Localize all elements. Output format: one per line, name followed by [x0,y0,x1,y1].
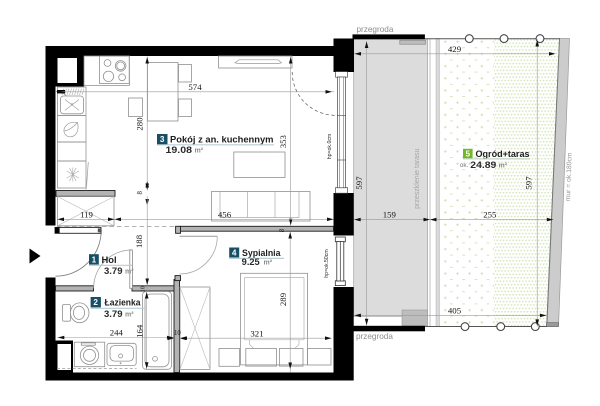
svg-text:597: 597 [354,176,364,190]
svg-text:Łazienka: Łazienka [105,297,142,308]
svg-text:353: 353 [278,135,288,149]
svg-text:8: 8 [137,191,144,195]
svg-text:321: 321 [250,328,263,338]
svg-text:10: 10 [174,330,181,337]
svg-text:164: 164 [134,324,144,338]
svg-text:456: 456 [218,210,232,220]
svg-text:m²: m² [195,148,204,155]
svg-text:m²: m² [499,162,508,169]
svg-text:3.79: 3.79 [104,266,123,276]
svg-text:8: 8 [279,228,286,232]
svg-text:hp=ok.50cm: hp=ok.50cm [324,249,330,277]
svg-text:4: 4 [232,249,237,258]
svg-text:3: 3 [160,135,165,144]
svg-text:574: 574 [188,82,202,92]
svg-text:Ogród+taras: Ogród+taras [476,148,530,159]
svg-text:1: 1 [92,255,97,264]
svg-text:przegroda: przegroda [357,25,394,34]
svg-text:255: 255 [483,210,497,220]
svg-text:24.89: 24.89 [470,160,496,170]
svg-text:ok.: ok. [460,162,469,169]
svg-text:19.08: 19.08 [166,145,193,155]
svg-text:429: 429 [448,44,462,54]
svg-text:3.79: 3.79 [104,309,123,319]
svg-text:9.25: 9.25 [242,257,260,267]
svg-text:przegroda: przegroda [356,332,393,341]
svg-text:280: 280 [135,117,145,131]
svg-text:159: 159 [383,210,397,220]
svg-text:405: 405 [448,306,462,316]
svg-text:m²: m² [264,260,273,267]
svg-text:289: 289 [278,292,288,306]
svg-text:119: 119 [80,210,93,220]
svg-text:Hol: Hol [102,254,117,265]
svg-text:m²: m² [125,269,134,276]
svg-text:hp=ok.0cm: hp=ok.0cm [327,134,333,160]
svg-text:188: 188 [134,234,144,248]
svg-text:597: 597 [523,176,533,190]
svg-text:10: 10 [141,286,147,292]
svg-text:2: 2 [93,298,98,307]
svg-text:244: 244 [110,328,124,338]
svg-text:5: 5 [466,150,471,159]
svg-text:m²: m² [125,312,134,319]
svg-text:przeszklenie tarasu: przeszklenie tarasu [414,148,421,208]
svg-text:Pokój z an. kuchennym: Pokój z an. kuchennym [170,134,274,145]
